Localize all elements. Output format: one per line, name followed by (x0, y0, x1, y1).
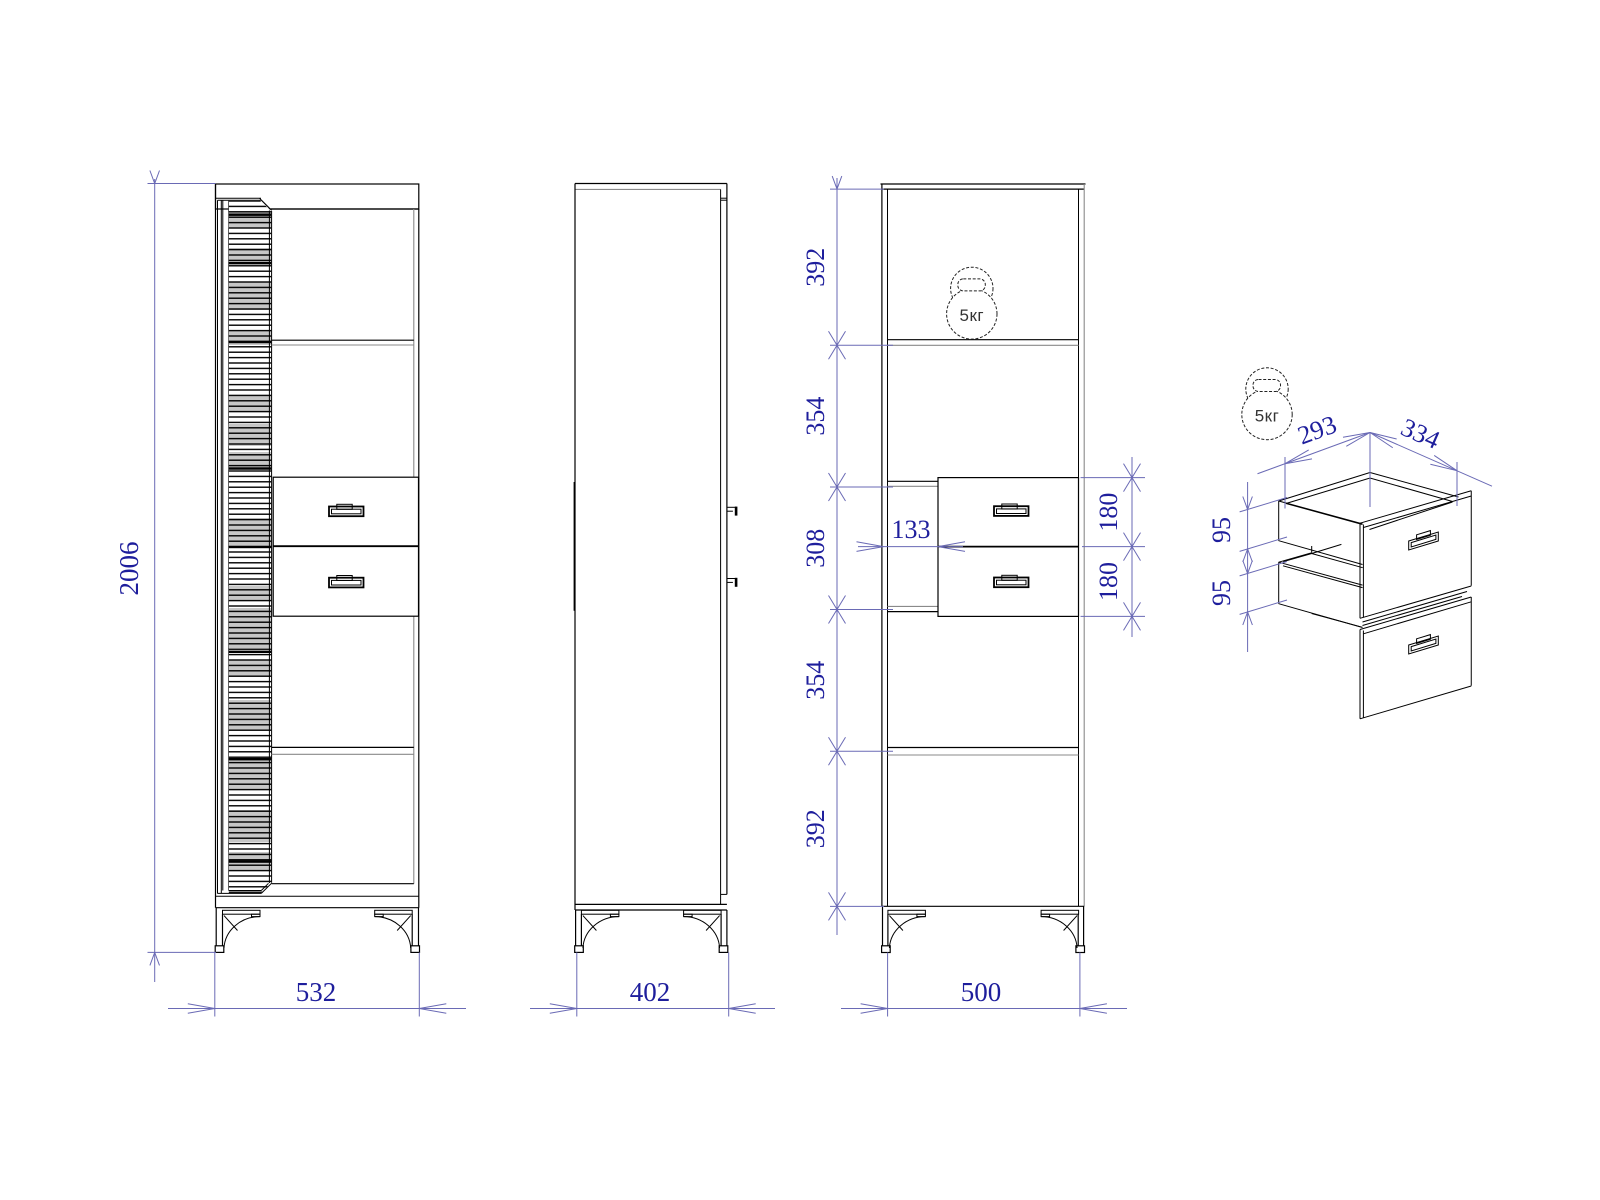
svg-text:354: 354 (801, 661, 830, 700)
svg-text:392: 392 (801, 809, 830, 848)
svg-text:500: 500 (961, 977, 1002, 1007)
svg-text:354: 354 (801, 397, 830, 436)
svg-text:402: 402 (630, 977, 671, 1007)
svg-text:133: 133 (892, 515, 931, 544)
svg-text:392: 392 (801, 248, 830, 287)
svg-text:308: 308 (801, 529, 830, 568)
svg-text:95: 95 (1207, 517, 1236, 543)
svg-text:95: 95 (1207, 580, 1236, 606)
svg-text:2006: 2006 (114, 542, 144, 596)
svg-text:180: 180 (1094, 493, 1123, 532)
svg-text:180: 180 (1094, 562, 1123, 601)
svg-text:532: 532 (296, 977, 337, 1007)
